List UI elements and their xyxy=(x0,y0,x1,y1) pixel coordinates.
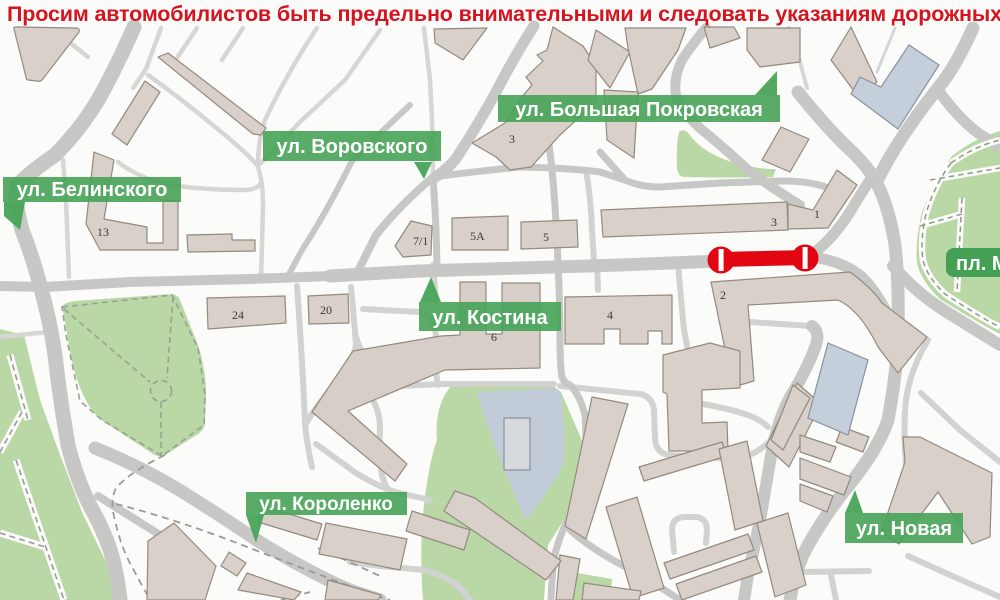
svg-text:ул. Белинского: ул. Белинского xyxy=(17,179,168,201)
svg-text:ул. Новая: ул. Новая xyxy=(856,518,952,540)
svg-text:20: 20 xyxy=(320,303,332,317)
svg-text:ул. Короленко: ул. Короленко xyxy=(259,494,393,515)
svg-text:1: 1 xyxy=(814,207,820,221)
svg-text:3: 3 xyxy=(771,215,777,229)
svg-text:2: 2 xyxy=(720,288,726,302)
svg-text:5А: 5А xyxy=(470,229,485,243)
svg-text:ул. Воровского: ул. Воровского xyxy=(277,136,428,158)
svg-text:ул. Костина: ул. Костина xyxy=(432,307,548,329)
svg-text:Просим автомобилистов быть пре: Просим автомобилистов быть предельно вни… xyxy=(7,2,1000,26)
svg-text:3: 3 xyxy=(509,132,515,146)
svg-text:4: 4 xyxy=(607,308,613,322)
svg-text:6: 6 xyxy=(491,330,497,344)
svg-text:7/1: 7/1 xyxy=(413,234,428,248)
svg-text:5: 5 xyxy=(543,230,549,244)
svg-text:ул. Большая Покровская: ул. Большая Покровская xyxy=(515,99,763,121)
svg-text:пл. М: пл. М xyxy=(956,253,1000,275)
svg-text:24: 24 xyxy=(232,308,244,322)
svg-text:13: 13 xyxy=(97,225,109,239)
